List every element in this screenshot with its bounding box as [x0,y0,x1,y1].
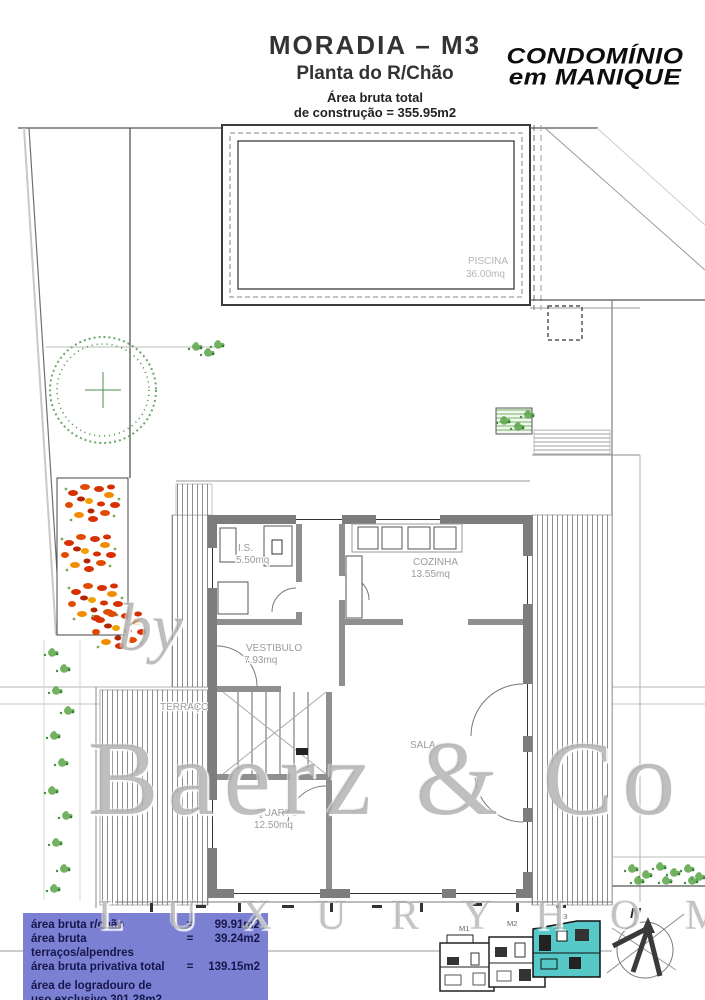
minimap-label-m1: M1 [459,924,469,933]
room-label-terraco: TERRAÇO [160,702,209,713]
minimap-label-m3: M3 [557,912,567,921]
room-label-quarto: QUARTO [256,808,299,819]
equals-sign: = [182,918,198,932]
room-label-is: I.S. [238,543,253,554]
area-note: Área bruta total de construção = 355.95m… [175,91,575,121]
floor-plan-drawing: PISCINA 36.00mq [0,0,705,1000]
area-row-privativa: área bruta privativa total = 139.15m2 [31,960,260,974]
area-row-label: área bruta terraços/alpendres [31,932,182,960]
flower-planter [57,478,147,649]
compass: N [607,905,684,978]
deck-right [532,515,612,905]
area-note-line2: de construção = 355.95m2 [175,106,575,121]
area-row-value: 39.24m2 [198,932,260,960]
logo-line2: em MANIQUE [497,67,693,88]
project-logo: CONDOMÍNIO em MANIQUE [497,46,693,87]
room-area-piscina: 36.00mq [466,269,505,280]
room-label-sala: SALA [410,740,436,751]
area-row-label: área bruta r/chão [31,918,182,932]
area-footer-line2: uso exclusivo 301.28m2 [31,993,260,1000]
area-row-value: 99.91m2 [198,918,260,932]
area-row-rchao: área bruta r/chão = 99.91m2 [31,918,260,932]
house: I.S. 5.50mq COZINHA 13.55mq VESTIBULO 7.… [208,515,532,898]
hedge-left [44,640,80,900]
area-row-terracos: área bruta terraços/alpendres = 39.24m2 [31,932,260,960]
room-area-cozinha: 13.55mq [411,569,450,580]
room-label-vestibulo: VESTIBULO [246,643,302,654]
room-label-cozinha: COZINHA [413,557,458,568]
dashed-square [548,306,582,340]
hedge-right [612,857,705,886]
floor-plan-page: MORADIA – M3 Planta do R/Chão Área bruta… [0,0,705,1000]
area-footer-line1: área de logradouro de [31,979,260,993]
deck-left-lower: TERRAÇO [100,690,209,905]
pool: PISCINA 36.00mq [222,125,705,340]
louver-panel [534,430,610,454]
room-label-piscina: PISCINA [468,256,508,267]
north-label: N [630,905,642,922]
house-floor [208,515,532,898]
equals-sign: = [182,960,198,974]
equals-sign: = [182,932,198,960]
room-area-is: 5.50mq [236,555,269,566]
tree [50,337,225,443]
area-row-label: área bruta privativa total [31,960,182,974]
areas-summary-box: área bruta r/chão = 99.91m2 área bruta t… [23,913,268,1000]
minimap-unit-m3-highlighted [533,921,600,977]
minimap-unit-m1 [440,935,494,991]
area-footer: área de logradouro de uso exclusivo 301.… [31,979,260,1000]
room-area-vestibulo: 7.93mq [244,655,277,666]
area-note-line1: Área bruta total [175,91,575,106]
area-row-value: 139.15m2 [198,960,260,974]
minimap-label-m2: M2 [507,919,517,928]
room-area-quarto: 12.50mq [254,820,293,831]
minimap: M1 M2 M3 [440,912,600,991]
